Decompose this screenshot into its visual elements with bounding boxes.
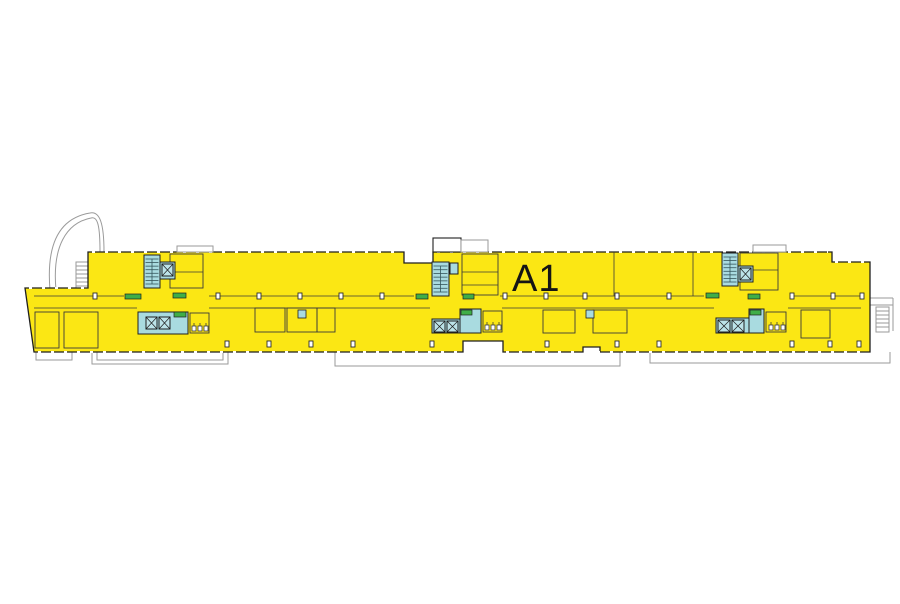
core3-stairs	[722, 253, 738, 286]
terrace-left	[92, 352, 228, 364]
floorplan-svg: A1	[0, 0, 900, 604]
core2-lift-b	[447, 321, 458, 332]
core1-lift-b	[159, 317, 170, 329]
core3-lift-b	[732, 320, 744, 332]
core2-stairs	[432, 262, 449, 296]
shaft-small-1	[298, 310, 306, 318]
core3-lift-a	[718, 320, 730, 332]
floorplan-page: A1	[0, 0, 900, 604]
core1-lift-upper	[162, 264, 173, 276]
right-exterior-stair	[870, 298, 893, 332]
terrace-left-small	[36, 352, 72, 360]
canopy-box-right	[753, 245, 786, 252]
canopy-box-left	[177, 246, 213, 252]
zone-label: A1	[512, 258, 560, 300]
core1-wc	[192, 323, 208, 331]
left-exterior-stair	[76, 262, 89, 290]
rooftop-boxes	[177, 238, 786, 252]
shaft-small-2	[586, 310, 594, 318]
core2-wc	[485, 322, 501, 330]
core1-lift-a	[146, 317, 157, 329]
core3-lift-upper	[740, 268, 751, 280]
canopy-box-center	[461, 240, 488, 252]
core1-stairs	[144, 255, 160, 288]
core2-lift-a	[434, 321, 445, 332]
terrace-center	[335, 352, 620, 366]
terrace-right	[650, 352, 890, 363]
rooftop-box-center	[433, 238, 461, 252]
